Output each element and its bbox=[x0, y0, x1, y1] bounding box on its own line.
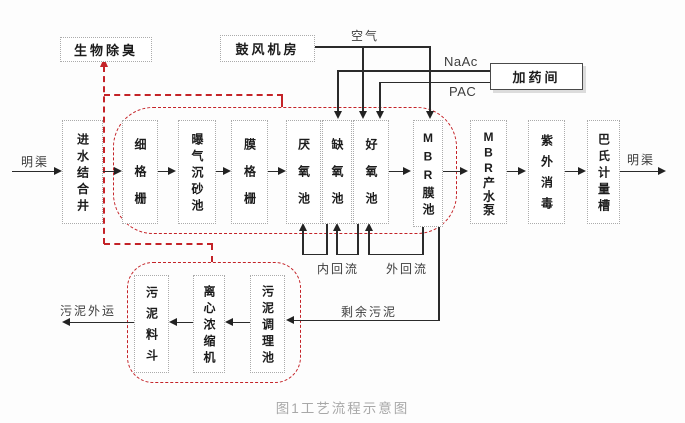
label-air: 空气 bbox=[351, 27, 379, 44]
label-excess-sludge: 剩余污泥 bbox=[341, 303, 397, 320]
recycle-line-segment bbox=[368, 254, 423, 256]
box-parshall-flume: 巴氏计量槽 bbox=[587, 120, 620, 224]
flow-arrowhead bbox=[578, 167, 586, 175]
box-label: MBR产水泵 bbox=[483, 128, 495, 217]
excess-sludge-arrowhead bbox=[286, 316, 294, 324]
air-arrowhead bbox=[359, 111, 367, 119]
box-label: 进水结合井 bbox=[77, 129, 89, 216]
box-label: 好氧池 bbox=[365, 125, 377, 219]
box-label: 离心浓缩机 bbox=[203, 281, 215, 368]
deodor-duct-segment bbox=[103, 66, 105, 244]
flow-arrowhead bbox=[278, 167, 286, 175]
box-label: 膜格栅 bbox=[244, 125, 256, 219]
deodor-duct-segment bbox=[104, 94, 283, 96]
label-internal-recycle: 内回流 bbox=[317, 260, 359, 277]
box-sludge-conditioning-tank: 污泥调理池 bbox=[250, 275, 285, 373]
recycle-line-segment bbox=[326, 224, 328, 255]
label-open-channel-in: 明渠 bbox=[21, 153, 49, 170]
flow-arrowhead bbox=[403, 167, 411, 175]
flow-arrowhead bbox=[460, 167, 468, 175]
naac-line-segment bbox=[337, 70, 339, 112]
box-bio-deodorization: 生物除臭 bbox=[60, 37, 152, 62]
recycle-line-segment bbox=[422, 227, 424, 255]
sludge-line-segment bbox=[70, 322, 134, 324]
box-label: MBR膜池 bbox=[422, 127, 434, 220]
sludge-line-segment bbox=[177, 322, 193, 324]
pac-line-segment bbox=[380, 82, 490, 84]
box-label: 细格栅 bbox=[134, 125, 146, 219]
excess-sludge-line bbox=[438, 227, 440, 321]
box-membrane-screen: 膜格栅 bbox=[231, 120, 268, 224]
box-uv-disinfection: 紫外消毒 bbox=[528, 120, 565, 224]
box-aerobic-tank: 好氧池 bbox=[353, 120, 389, 224]
flow-arrowhead bbox=[168, 167, 176, 175]
recycle-line-segment bbox=[368, 231, 370, 255]
recycle-line-segment bbox=[302, 231, 304, 255]
box-anaerobic-tank: 厌氧池 bbox=[286, 120, 321, 224]
air-line-segment bbox=[315, 46, 431, 48]
box-label: 鼓风机房 bbox=[235, 39, 299, 58]
flow-arrowhead bbox=[658, 167, 666, 175]
box-mbr-membrane-tank: MBR膜池 bbox=[413, 120, 443, 227]
process-flow-diagram: 生物除臭 鼓风机房 加药间 进水结合井 细格栅 曝气沉砂池 膜格栅 厌氧池 缺氧… bbox=[0, 0, 685, 423]
label-external-recycle: 外回流 bbox=[386, 260, 428, 277]
box-aerated-grit-chamber: 曝气沉砂池 bbox=[178, 120, 216, 224]
recycle-line-segment bbox=[336, 231, 338, 255]
pac-arrowhead bbox=[376, 111, 384, 119]
box-sludge-hopper: 污泥料斗 bbox=[134, 275, 169, 373]
naac-arrowhead bbox=[334, 111, 342, 119]
deodor-duct-segment bbox=[211, 244, 213, 262]
deodor-duct-segment bbox=[104, 243, 213, 245]
flow-arrowhead bbox=[54, 167, 62, 175]
air-line-segment bbox=[362, 46, 364, 112]
box-centrifugal-thickener: 离心浓缩机 bbox=[193, 275, 225, 373]
label-open-channel-out: 明渠 bbox=[627, 151, 655, 168]
recycle-arrowhead bbox=[299, 223, 307, 231]
box-label: 紫外消毒 bbox=[541, 126, 553, 218]
recycle-arrowhead bbox=[365, 223, 373, 231]
box-label: 曝气沉砂池 bbox=[191, 129, 203, 216]
sludge-line-segment bbox=[233, 322, 250, 324]
air-line-segment bbox=[429, 46, 431, 112]
sludge-arrowhead bbox=[225, 318, 233, 326]
label-pac: PAC bbox=[449, 84, 476, 99]
recycle-line-segment bbox=[302, 254, 328, 256]
box-label: 巴氏计量槽 bbox=[598, 129, 610, 216]
box-anoxic-tank: 缺氧池 bbox=[322, 120, 352, 224]
sludge-arrowhead bbox=[169, 318, 177, 326]
naac-line-segment bbox=[338, 70, 490, 72]
deodor-duct-segment bbox=[281, 95, 283, 107]
box-label: 污泥调理池 bbox=[262, 281, 274, 368]
box-fine-screen: 细格栅 bbox=[122, 120, 158, 224]
flow-arrowhead bbox=[518, 167, 526, 175]
box-mbr-product-pump: MBR产水泵 bbox=[470, 120, 507, 224]
flow-arrowhead bbox=[114, 167, 122, 175]
figure-caption: 图1工艺流程示意图 bbox=[0, 397, 685, 417]
label-sludge-out: 污泥外运 bbox=[60, 302, 116, 319]
box-label: 厌氧池 bbox=[298, 125, 310, 219]
box-label: 加药间 bbox=[512, 67, 560, 86]
label-naac: NaAc bbox=[444, 54, 478, 69]
recycle-line-segment bbox=[336, 254, 358, 256]
flow-arrowhead bbox=[223, 167, 231, 175]
flow-line-segment bbox=[443, 171, 461, 173]
recycle-arrowhead bbox=[333, 223, 341, 231]
box-label: 缺氧池 bbox=[331, 125, 343, 219]
box-label: 污泥料斗 bbox=[146, 278, 158, 370]
flow-line-segment bbox=[12, 171, 55, 173]
box-dosing-room: 加药间 bbox=[490, 63, 583, 90]
box-label: 生物除臭 bbox=[74, 40, 138, 59]
recycle-line-segment bbox=[357, 224, 359, 255]
flow-line-segment bbox=[620, 171, 659, 173]
box-inlet-well: 进水结合井 bbox=[62, 120, 103, 224]
box-blower-room: 鼓风机房 bbox=[220, 35, 315, 62]
air-arrowhead bbox=[426, 111, 434, 119]
pac-line-segment bbox=[379, 82, 381, 113]
sludge-arrowhead bbox=[62, 318, 70, 326]
